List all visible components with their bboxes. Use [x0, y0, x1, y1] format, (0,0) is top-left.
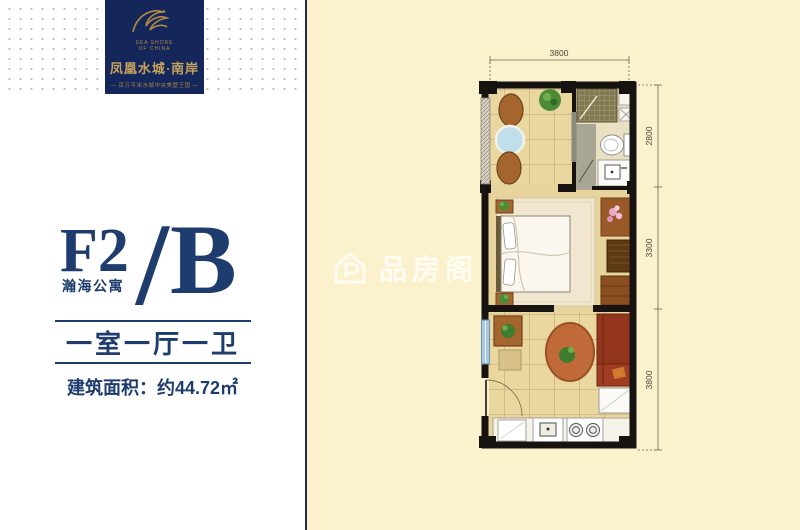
stool	[499, 350, 521, 370]
wardrobe	[607, 240, 633, 272]
sofa	[597, 314, 634, 386]
kitchen-sink	[533, 418, 563, 442]
unit-code-variant: B	[170, 210, 237, 310]
building-name: 瀚海公寓	[62, 276, 124, 296]
dresser	[601, 276, 632, 305]
bed	[496, 216, 570, 292]
dim-top: 3800	[550, 48, 569, 58]
shaft-hatch	[481, 98, 490, 184]
brand-logo-block: SEA SHORE OF CHINA 凤凰水城·南岸 — 百万平米水城中央美墅王…	[105, 0, 204, 94]
bedroom	[496, 198, 633, 306]
dim-right-mid: 3300	[644, 238, 654, 257]
flower-console	[601, 198, 631, 236]
dim-right-top: 2800	[644, 126, 654, 145]
dining-table	[496, 126, 524, 154]
dining-chair	[499, 94, 523, 126]
stove	[567, 418, 603, 442]
unit-code-separator: /	[136, 206, 169, 324]
logo-en-line2: OF CHINA	[139, 46, 171, 52]
bathroom	[576, 89, 633, 186]
dim-right-bottom: 3800	[644, 370, 654, 389]
oval-rug	[546, 323, 594, 381]
nightstand	[496, 200, 513, 213]
area-label: 建筑面积：约44.72㎡	[67, 374, 238, 400]
flyer-page: SEA SHORE OF CHINA 凤凰水城·南岸 — 百万平米水城中央美墅王…	[0, 0, 800, 530]
kitchen	[493, 418, 633, 442]
logo-tagline: — 百万平米水城中央美墅王国 —	[110, 81, 198, 89]
left-panel: SEA SHORE OF CHINA 凤凰水城·南岸 — 百万平米水城中央美墅王…	[0, 0, 305, 530]
toilet	[601, 134, 634, 156]
dining-chair	[497, 152, 521, 184]
rooms-box: 一室一厅一卫	[55, 320, 251, 364]
nightstand	[496, 293, 513, 306]
floorplan: 3800 2800 3300 3800	[455, 40, 685, 470]
side-table	[494, 316, 522, 346]
rooms-summary: 一室一厅一卫	[66, 324, 240, 361]
unit-code-main: F2	[60, 220, 129, 282]
logo-cn-title: 凤凰水城·南岸	[110, 58, 199, 77]
shower	[577, 89, 617, 122]
phoenix-icon	[119, 6, 191, 40]
plant	[539, 89, 561, 111]
bath-corridor	[576, 124, 596, 186]
